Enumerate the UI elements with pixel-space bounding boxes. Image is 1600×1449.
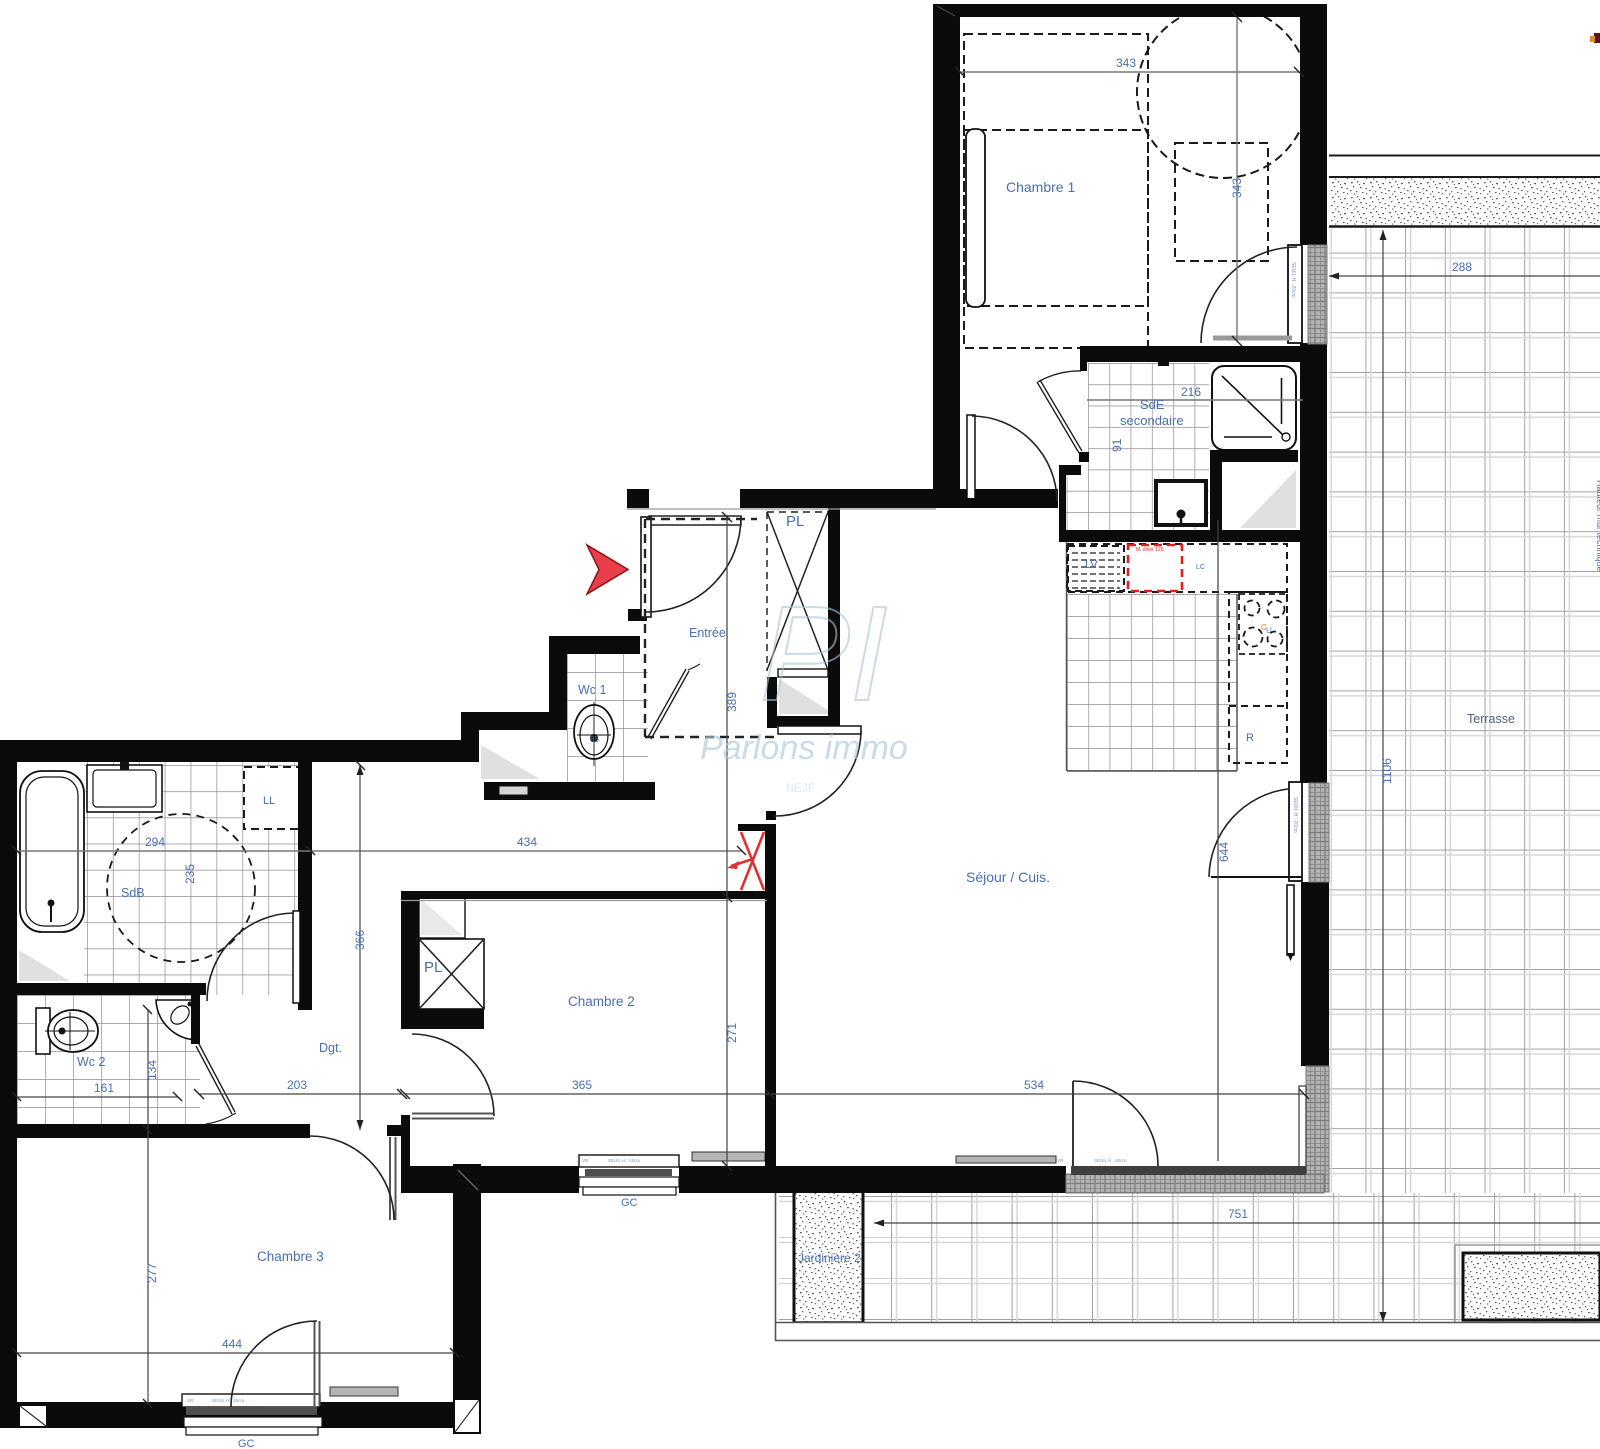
svg-text:SEUIL H : 15cm: SEUIL H : 15cm [212, 1398, 244, 1403]
svg-text:M. évier 120: M. évier 120 [1136, 547, 1164, 553]
svg-text:SEUIL H : 15cm: SEUIL H : 15cm [608, 1158, 640, 1163]
svg-text:161: 161 [94, 1081, 114, 1095]
svg-text:534: 534 [1024, 1078, 1044, 1092]
svg-text:PL: PL [424, 959, 442, 976]
svg-text:SdE: SdE [1140, 397, 1165, 412]
svg-text:Chambre 1: Chambre 1 [1006, 179, 1075, 195]
svg-text:VR: VR [582, 1158, 589, 1163]
svg-text:PI: PI [760, 578, 888, 729]
svg-text:294: 294 [145, 835, 165, 849]
svg-text:216: 216 [1181, 385, 1201, 399]
svg-text:85: 85 [590, 735, 599, 744]
svg-text:secondaire: secondaire [1120, 413, 1184, 428]
svg-text:751: 751 [1228, 1207, 1248, 1221]
svg-text:235: 235 [183, 864, 197, 884]
svg-text:434: 434 [517, 835, 537, 849]
svg-text:Parlons immo: Parlons immo [700, 729, 908, 767]
svg-text:Terrasse: Terrasse [1467, 712, 1515, 726]
svg-text:Séjour / Cuis.: Séjour / Cuis. [966, 869, 1050, 885]
svg-text:366: 366 [353, 930, 367, 950]
svg-text:203: 203 [287, 1078, 307, 1092]
svg-text:644: 644 [1217, 842, 1231, 862]
svg-text:VR: VR [187, 1398, 194, 1403]
svg-text:Entrée: Entrée [689, 626, 726, 640]
svg-text:91: 91 [1110, 438, 1124, 452]
svg-text:U: U [1266, 626, 1272, 635]
svg-text:Wc 1: Wc 1 [578, 683, 607, 697]
svg-text:343: 343 [1116, 56, 1136, 70]
svg-text:271: 271 [725, 1023, 739, 1043]
svg-text:444: 444 [222, 1337, 242, 1351]
svg-text:R: R [1246, 732, 1254, 744]
svg-text:Jardinière 2: Jardinière 2 [798, 1251, 861, 1265]
svg-text:277: 277 [145, 1263, 159, 1283]
svg-text:Chambre 3: Chambre 3 [257, 1249, 324, 1264]
svg-text:1106: 1106 [1380, 758, 1394, 784]
svg-text:PL: PL [786, 513, 804, 530]
svg-text:288: 288 [1452, 260, 1472, 274]
svg-text:GC: GC [621, 1197, 638, 1209]
svg-text:389: 389 [725, 692, 739, 712]
svg-text:SdB: SdB [121, 886, 145, 900]
svg-text:NEJF: NEJF [786, 783, 815, 795]
svg-text:LV: LV [1085, 559, 1098, 571]
svg-text:365: 365 [572, 1078, 592, 1092]
svg-text:Chambre 2: Chambre 2 [568, 994, 635, 1009]
svg-text:GC: GC [238, 1438, 255, 1449]
svg-text:343: 343 [1230, 178, 1244, 198]
svg-text:SEUIL H : 20cm: SEUIL H : 20cm [1290, 262, 1296, 298]
svg-text:Hauteur mur technique: Hauteur mur technique [1595, 480, 1600, 572]
svg-text:VR: VR [1057, 1158, 1064, 1163]
svg-text:SEUIL H : 20cm: SEUIL H : 20cm [1094, 1158, 1126, 1163]
svg-text:Dgt.: Dgt. [319, 1041, 342, 1055]
svg-text:Wc 2: Wc 2 [77, 1055, 106, 1069]
svg-text:134: 134 [145, 1060, 159, 1080]
svg-text:LL: LL [263, 795, 275, 807]
svg-text:SEUIL H : 20cm: SEUIL H : 20cm [1292, 797, 1298, 833]
svg-text:LC: LC [1196, 564, 1205, 571]
